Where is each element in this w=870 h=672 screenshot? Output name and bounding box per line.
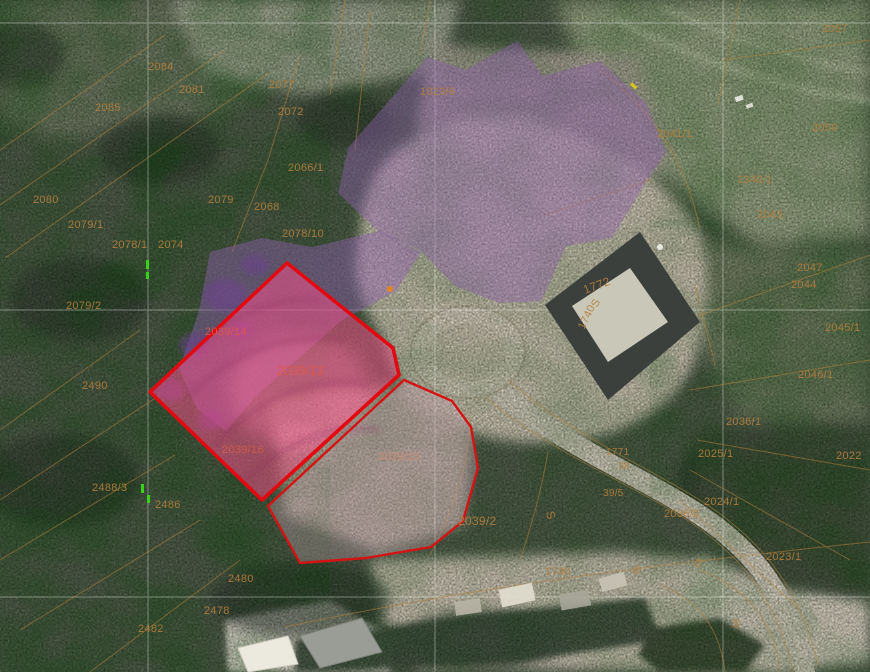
parcel-label: 2074 [158, 239, 184, 251]
parcel-label: 2039/2 [458, 514, 497, 528]
parcel-label: 1023/6 [420, 86, 455, 98]
parcel-label: 2036/1 [726, 416, 761, 428]
parcel-label: 2023/1 [766, 551, 801, 563]
parcel-label: 2024/1 [704, 496, 739, 508]
parcel-label: 39/5 [603, 488, 624, 499]
parcel-label: 2079/1 [68, 219, 103, 231]
parcel-label: 2043 [757, 209, 783, 221]
aerial-basemap: 208420812085207720722066/11023/620802079… [0, 0, 870, 672]
parcel-label: 1740 [545, 566, 571, 578]
parcel-label: 2078/10 [282, 228, 324, 240]
parcel-label: 2081 [179, 84, 205, 96]
parcel-label: 2039/15 [378, 451, 420, 463]
parcel-label: 2488/3 [92, 482, 127, 494]
parcel-label: 2079 [208, 194, 234, 206]
parcel-label: 2085 [95, 102, 121, 114]
parcel-label: 2482 [138, 623, 164, 635]
parcel-label: 1340/1 [737, 174, 772, 186]
map-viewer[interactable]: 208420812085207720722066/11023/620802079… [0, 0, 870, 672]
parcel-label: 2022 [836, 450, 862, 462]
parcel-label: 2079/2 [66, 300, 101, 312]
parcel-label: 2066/1 [288, 162, 323, 174]
parcel-label: 2045/1 [825, 322, 860, 334]
parcel-label: 2084 [148, 61, 174, 73]
parcel-label: 1771 [606, 447, 630, 458]
parcel-label: 2039/16 [222, 444, 264, 456]
parcel-label: 2047 [797, 262, 823, 274]
parcel-label: 2039/13 [277, 364, 324, 378]
parcel-label: 2068 [254, 201, 280, 213]
rooftop-dot [657, 244, 663, 250]
parcel-label: 2050 [812, 122, 838, 134]
parcel-label: 2044 [791, 279, 817, 291]
parcel-label: 2077 [269, 79, 295, 91]
parcel-label: 2486 [155, 499, 181, 511]
parcel-label: 2080 [33, 194, 59, 206]
orange-point-mark [387, 286, 393, 292]
parcel-label: 2478 [204, 605, 230, 617]
parcel-label: 2039/14 [205, 326, 247, 338]
parcel-label: 38 [618, 461, 630, 472]
parcel-label: 2490 [82, 380, 108, 392]
parcel-label: 2480 [228, 573, 254, 585]
parcel-label: 2036/2 [664, 508, 699, 520]
parcel-label: 2078/1 [112, 239, 147, 251]
parcel-label: 2072 [278, 106, 304, 118]
parcel-label: 2025/1 [698, 448, 733, 460]
parcel-label: 2057 [822, 23, 848, 35]
parcel-label: 2046/1 [798, 369, 833, 381]
parcel-label: 2041/1 [657, 128, 692, 140]
